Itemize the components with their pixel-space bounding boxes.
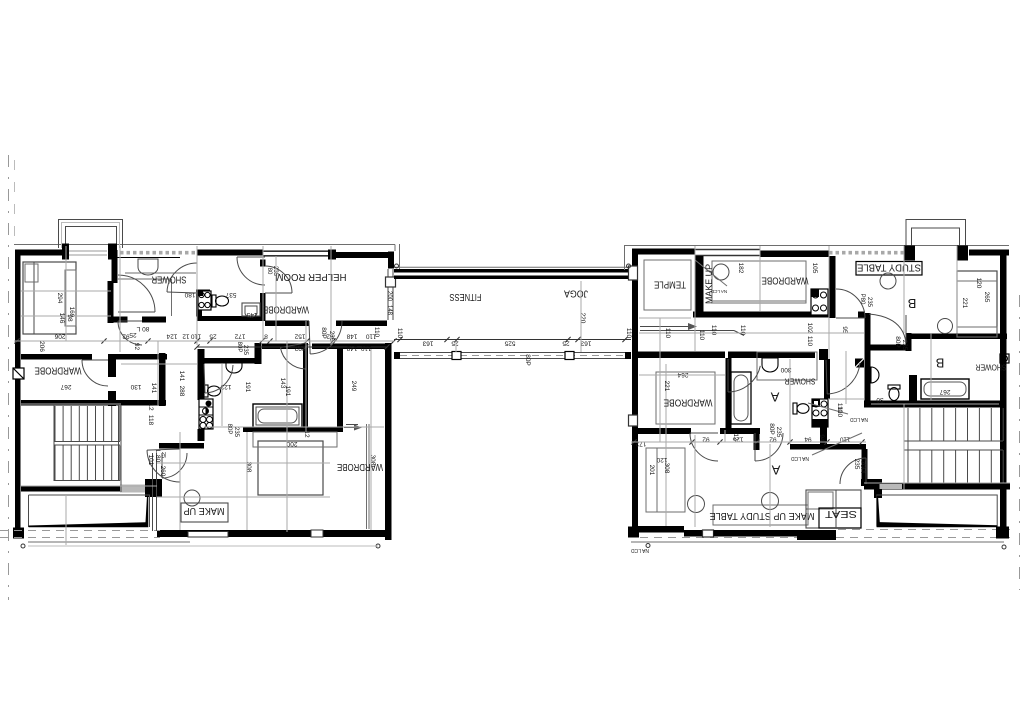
svg-text:235: 235 [775, 427, 782, 438]
svg-text:101: 101 [147, 455, 154, 466]
svg-text:92: 92 [702, 436, 710, 443]
svg-text:12: 12 [732, 433, 739, 441]
svg-text:105: 105 [811, 263, 818, 274]
svg-text:SEAT: SEAT [825, 508, 857, 519]
svg-text:12: 12 [147, 403, 154, 411]
svg-text:110: 110 [190, 333, 201, 340]
svg-text:235: 235 [901, 340, 908, 351]
svg-text:146: 146 [58, 313, 65, 324]
svg-text:HELPER ROOM: HELPER ROOM [276, 271, 347, 282]
svg-text:30: 30 [876, 396, 884, 403]
svg-text:221: 221 [961, 298, 968, 309]
svg-text:163: 163 [580, 340, 591, 347]
svg-text:SHOWER: SHOWER [975, 363, 1006, 372]
svg-text:200: 200 [286, 440, 297, 447]
svg-text:220: 220 [579, 313, 586, 324]
svg-text:25: 25 [160, 452, 166, 458]
svg-text:SHOWER: SHOWER [152, 274, 187, 285]
svg-text:92: 92 [133, 343, 140, 351]
svg-text:WARDROBE: WARDROBE [263, 304, 309, 315]
svg-text:191: 191 [284, 386, 291, 397]
svg-text:152: 152 [294, 333, 305, 340]
svg-text:TEMPLE: TEMPLE [654, 279, 686, 290]
svg-text:267: 267 [60, 383, 71, 390]
svg-text:525: 525 [504, 340, 515, 347]
svg-text:110: 110 [360, 345, 371, 352]
svg-text:25: 25 [129, 331, 137, 338]
svg-text:172: 172 [234, 333, 245, 340]
svg-text:120: 120 [656, 456, 667, 463]
svg-text:148: 148 [346, 345, 357, 352]
svg-text:110: 110 [373, 327, 380, 338]
svg-text:110: 110 [836, 403, 843, 414]
svg-text:235: 235 [866, 297, 872, 308]
svg-text:148: 148 [386, 305, 392, 316]
svg-text:NA LCD: NA LCD [631, 547, 649, 553]
svg-text:80P: 80P [320, 327, 327, 339]
svg-text:206: 206 [38, 341, 45, 352]
svg-text:163: 163 [422, 340, 433, 347]
svg-text:92: 92 [122, 333, 130, 340]
svg-text:WARDROBE: WARDROBE [337, 461, 383, 472]
svg-text:94: 94 [818, 434, 825, 442]
svg-text:141: 141 [178, 371, 185, 382]
svg-text:124: 124 [166, 333, 177, 340]
svg-text:SHOWER: SHOWER [784, 377, 815, 386]
svg-text:FITNESS: FITNESS [450, 291, 482, 303]
svg-text:235: 235 [242, 345, 248, 356]
svg-text:80P: 80P [768, 423, 775, 435]
svg-text:120: 120 [975, 278, 982, 289]
svg-text:80P: 80P [236, 342, 242, 353]
svg-text:267: 267 [939, 388, 950, 395]
svg-text:80P: 80P [894, 336, 901, 348]
svg-text:12: 12 [182, 333, 190, 340]
svg-text:148: 148 [346, 333, 357, 340]
svg-text:80: 80 [266, 268, 272, 275]
svg-text:A: A [770, 390, 779, 405]
svg-text:P80: P80 [859, 294, 865, 305]
svg-text:392: 392 [294, 345, 305, 352]
svg-text:98: 98 [66, 314, 73, 322]
svg-text:80P: 80P [226, 424, 232, 435]
svg-text:25: 25 [451, 340, 459, 347]
svg-text:80 L: 80 L [136, 325, 149, 332]
svg-text:308: 308 [663, 463, 670, 474]
svg-text:B: B [908, 296, 917, 311]
svg-text:94: 94 [804, 436, 812, 443]
svg-text:537: 537 [225, 291, 236, 298]
svg-text:NA LCD: NA LCD [850, 416, 868, 422]
svg-text:25: 25 [562, 340, 570, 347]
svg-text:WARDROBE: WARDROBE [663, 397, 712, 408]
svg-text:260: 260 [159, 466, 166, 477]
svg-text:110: 110 [396, 328, 403, 339]
svg-text:80P: 80P [524, 354, 531, 366]
svg-text:201: 201 [648, 465, 655, 476]
svg-text:A: A [771, 463, 780, 478]
svg-text:102: 102 [806, 323, 813, 334]
svg-text:118: 118 [147, 415, 154, 426]
svg-text:WARDROBE: WARDROBE [34, 365, 81, 376]
svg-text:200: 200 [386, 291, 392, 302]
svg-text:STUDY TABLE: STUDY TABLE [857, 262, 921, 273]
svg-text:130: 130 [130, 383, 141, 390]
svg-text:110: 110 [806, 336, 813, 347]
svg-text:110: 110 [625, 328, 632, 339]
svg-text:180: 180 [184, 291, 195, 298]
svg-text:L 80: L 80 [154, 450, 161, 463]
svg-text:WARDROBE: WARDROBE [761, 275, 808, 286]
svg-text:110: 110 [739, 325, 746, 336]
svg-text:288: 288 [178, 386, 185, 397]
svg-text:70Pl: 70Pl [859, 460, 866, 474]
svg-text:MAKE UP: MAKE UP [183, 505, 224, 516]
svg-text:8: 8 [264, 333, 268, 340]
svg-text:294: 294 [56, 293, 63, 304]
svg-text:172: 172 [635, 440, 646, 447]
svg-text:235: 235 [853, 459, 860, 470]
svg-text:235: 235 [233, 427, 239, 438]
svg-text:110: 110 [710, 325, 717, 336]
svg-text:145: 145 [246, 311, 257, 318]
svg-text:MAKE UP: MAKE UP [704, 264, 715, 304]
svg-text:191: 191 [244, 382, 251, 393]
svg-text:249: 249 [350, 381, 357, 392]
svg-text:NA LCD: NA LCD [791, 455, 809, 461]
svg-text:182: 182 [737, 263, 744, 274]
svg-text:JOGA: JOGA [564, 288, 588, 300]
svg-text:221: 221 [663, 381, 670, 392]
svg-text:110: 110 [698, 330, 705, 341]
svg-text:MAKE UP STUDY TABLE: MAKE UP STUDY TABLE [709, 510, 814, 521]
svg-text:141: 141 [150, 383, 157, 394]
svg-text:B: B [936, 356, 945, 371]
svg-text:206: 206 [54, 333, 65, 340]
svg-text:265: 265 [983, 292, 990, 303]
svg-text:25: 25 [209, 333, 217, 340]
svg-text:110: 110 [664, 328, 671, 339]
